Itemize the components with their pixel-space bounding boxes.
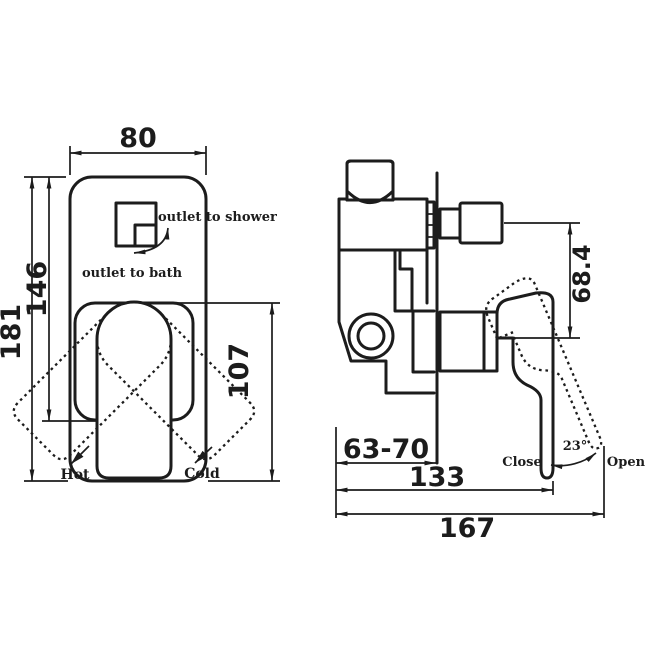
open-label: Open: [607, 455, 645, 470]
handle-lever-side: [497, 293, 553, 478]
outlet-to-bath-label: outlet to bath: [82, 266, 183, 281]
valve-upper-body: [339, 199, 427, 250]
extension-lines: [24, 177, 68, 481]
diverter-knob: [460, 203, 502, 243]
dim-68-4-text: 68.4: [568, 244, 596, 303]
dim-146-text: 146: [22, 261, 53, 317]
top-outlet-fill: [347, 161, 393, 200]
drawing-canvas: outlet to shower outlet to bath 80 181 1…: [0, 0, 645, 645]
cold-label: Cold: [184, 466, 220, 482]
dim-63-70-text: 63-70: [343, 434, 429, 465]
inlet-port-outer: [349, 314, 393, 358]
dim-107-text: 107: [224, 343, 255, 399]
close-label: Close: [502, 455, 542, 470]
angle-label: 23°: [563, 439, 588, 454]
wall-connection-ribs: [427, 202, 434, 248]
dim-80-text: 80: [119, 123, 157, 154]
outlet-to-shower-label: outlet to shower: [158, 210, 277, 225]
dimension-height-181: 181: [0, 177, 68, 481]
front-view: outlet to shower outlet to bath 80 181 1…: [0, 123, 280, 483]
side-view: 68.4 Close 23° Open 63-70 133 167: [336, 161, 645, 544]
technical-drawing: outlet to shower outlet to bath 80 181 1…: [0, 0, 645, 645]
valve-lower-body: [339, 250, 434, 393]
cartridge-lines: [395, 250, 434, 372]
angle-arc: [551, 453, 596, 466]
dimension-width-80: 80: [70, 123, 206, 175]
hot-label: Hot: [60, 467, 90, 483]
diverter-stem: [440, 209, 460, 238]
handle-swing-angle: Close 23° Open: [502, 439, 645, 470]
dim-133-text: 133: [409, 462, 465, 493]
dim-167-text: 167: [439, 513, 495, 544]
